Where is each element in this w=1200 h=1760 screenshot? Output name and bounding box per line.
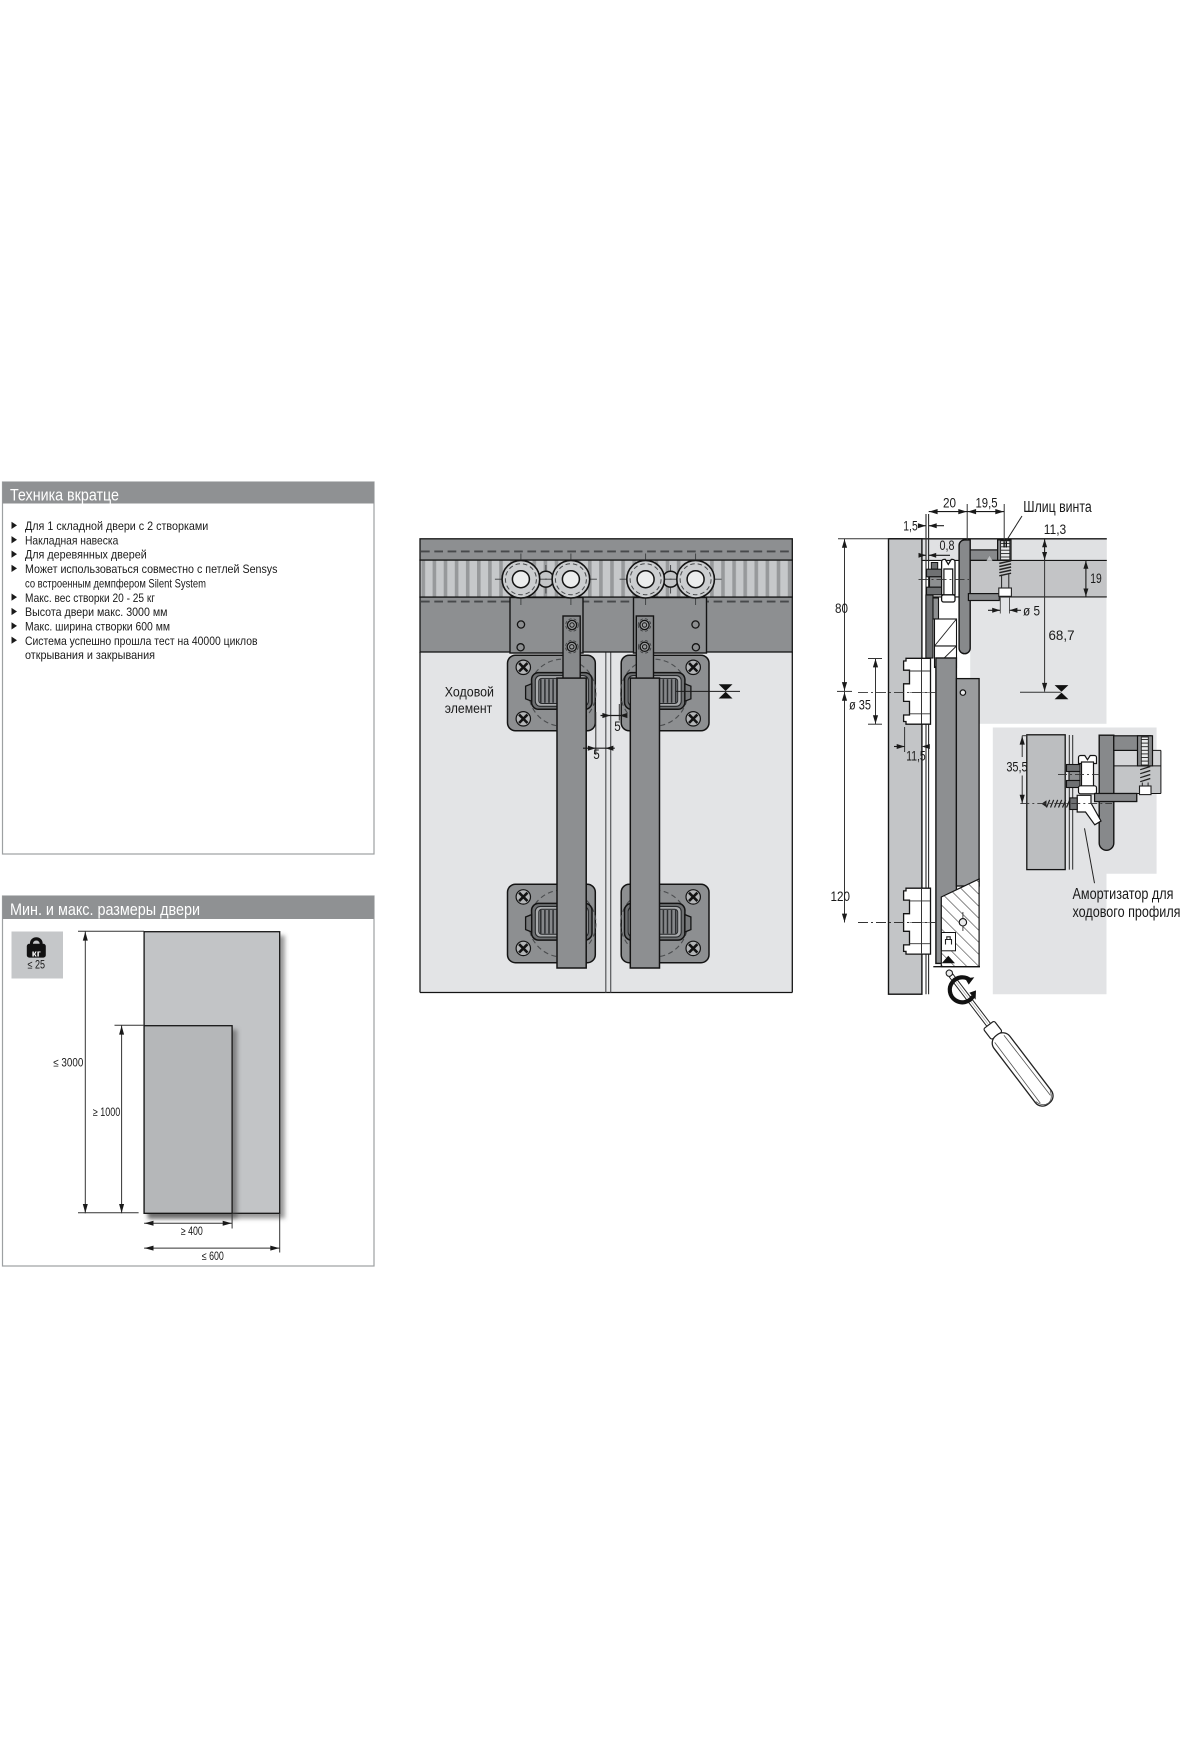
- svg-text:Шлиц винта: Шлиц винта: [1023, 499, 1092, 516]
- svg-text:1,5: 1,5: [903, 518, 918, 534]
- svg-text:19: 19: [1090, 570, 1102, 586]
- svg-text:элемент: элемент: [445, 700, 493, 716]
- svg-text:ø 35: ø 35: [849, 697, 871, 713]
- svg-text:ø 5: ø 5: [1023, 603, 1040, 619]
- svg-text:Система успешно прошла тест на: Система успешно прошла тест на 40000 цик…: [25, 635, 258, 648]
- svg-text:Ходовой: Ходовой: [445, 684, 494, 700]
- svg-text:Техника вкратце: Техника вкратце: [10, 487, 119, 505]
- svg-text:Макс. ширина створки 600 мм: Макс. ширина створки 600 мм: [25, 621, 170, 634]
- svg-text:со встроенным демпфером Silent: со встроенным демпфером Silent System: [25, 577, 206, 590]
- svg-text:≤ 600: ≤ 600: [202, 1251, 224, 1263]
- svg-text:Накладная навеска: Накладная навеска: [25, 534, 119, 547]
- svg-text:11,5: 11,5: [906, 748, 926, 764]
- svg-text:68,7: 68,7: [1049, 627, 1075, 643]
- svg-text:19,5: 19,5: [976, 495, 998, 511]
- svg-text:80: 80: [835, 600, 848, 616]
- svg-text:кг: кг: [32, 948, 41, 959]
- svg-text:≥ 400: ≥ 400: [181, 1226, 203, 1238]
- svg-text:35,5: 35,5: [1006, 759, 1027, 775]
- svg-text:≤ 3000: ≤ 3000: [53, 1058, 83, 1070]
- svg-text:5: 5: [593, 746, 600, 762]
- svg-text:Макс. вес створки 20 - 25 кг: Макс. вес створки 20 - 25 кг: [25, 592, 155, 605]
- svg-text:Мин. и макс. размеры двери: Мин. и макс. размеры двери: [10, 901, 200, 919]
- svg-text:Может использоваться совместно: Может использоваться совместно с петлей …: [25, 563, 278, 576]
- svg-text:20: 20: [943, 495, 956, 511]
- svg-text:открывания и закрывания: открывания и закрывания: [25, 649, 155, 662]
- svg-text:Высота двери макс. 3000 мм: Высота двери макс. 3000 мм: [25, 606, 168, 619]
- svg-text:11,3: 11,3: [1044, 521, 1067, 537]
- svg-text:≥ 1000: ≥ 1000: [93, 1107, 121, 1119]
- svg-text:Для деревянных дверей: Для деревянных дверей: [25, 549, 147, 562]
- svg-text:0,8: 0,8: [940, 537, 955, 553]
- svg-text:5: 5: [614, 718, 621, 734]
- svg-text:120: 120: [831, 888, 851, 904]
- svg-text:Амортизатор для: Амортизатор для: [1073, 886, 1174, 903]
- svg-text:≤ 25: ≤ 25: [28, 960, 46, 972]
- svg-text:ходового профиля: ходового профиля: [1073, 904, 1181, 921]
- svg-text:Для 1 складной двери с 2 створ: Для 1 складной двери с 2 створками: [25, 520, 208, 533]
